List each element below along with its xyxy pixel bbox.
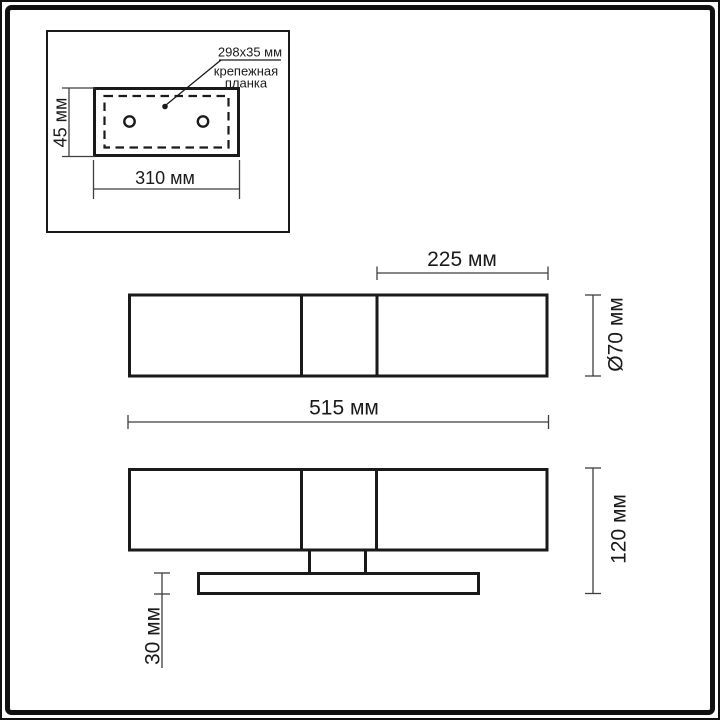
dim-backplate-height: 30 мм bbox=[142, 573, 171, 668]
side-view: 120 мм 30 мм bbox=[130, 468, 631, 668]
dimension-drawing-canvas: 298x35 мм крепежная планка 45 мм 310 мм bbox=[0, 0, 720, 720]
technical-drawing-page: 298x35 мм крепежная планка 45 мм 310 мм bbox=[0, 0, 720, 720]
mounting-hole-left bbox=[124, 116, 134, 126]
lamp-body-front-outline bbox=[130, 295, 548, 376]
dim-total-width: 515 мм bbox=[128, 397, 549, 430]
dim-plate-height: 45 мм bbox=[51, 88, 96, 157]
dim-shade-width-label: 225 мм bbox=[427, 248, 497, 271]
inset-panel-border bbox=[47, 31, 289, 232]
dim-plate-width-label: 310 мм bbox=[135, 168, 195, 188]
callout-name-line2: планка bbox=[225, 76, 268, 91]
dim-diameter: Ø70 мм bbox=[585, 295, 628, 376]
front-view: 225 мм Ø70 мм 515 мм bbox=[128, 248, 628, 429]
dim-plate-width: 310 мм bbox=[94, 160, 240, 199]
dim-backplate-label: 30 мм bbox=[142, 607, 165, 665]
wall-backplate-outline bbox=[199, 574, 479, 594]
dim-shade-width: 225 мм bbox=[377, 248, 548, 280]
inset-top-view: 298x35 мм крепежная планка 45 мм 310 мм bbox=[47, 31, 289, 232]
dim-total-height-label: 120 мм bbox=[608, 494, 631, 564]
mounting-plate-outline bbox=[95, 89, 239, 156]
callout-size-label: 298x35 мм bbox=[218, 45, 282, 60]
dim-total-width-label: 515 мм bbox=[309, 397, 379, 420]
mounting-hole-right bbox=[198, 116, 208, 126]
mounting-bracket-dashed-outline bbox=[105, 96, 229, 148]
lamp-body-side-outline bbox=[130, 470, 548, 551]
dim-diameter-label: Ø70 мм bbox=[605, 297, 628, 371]
callout-leader-line bbox=[166, 60, 221, 105]
dim-total-height: 120 мм bbox=[585, 468, 631, 594]
dim-plate-height-label: 45 мм bbox=[51, 98, 71, 148]
